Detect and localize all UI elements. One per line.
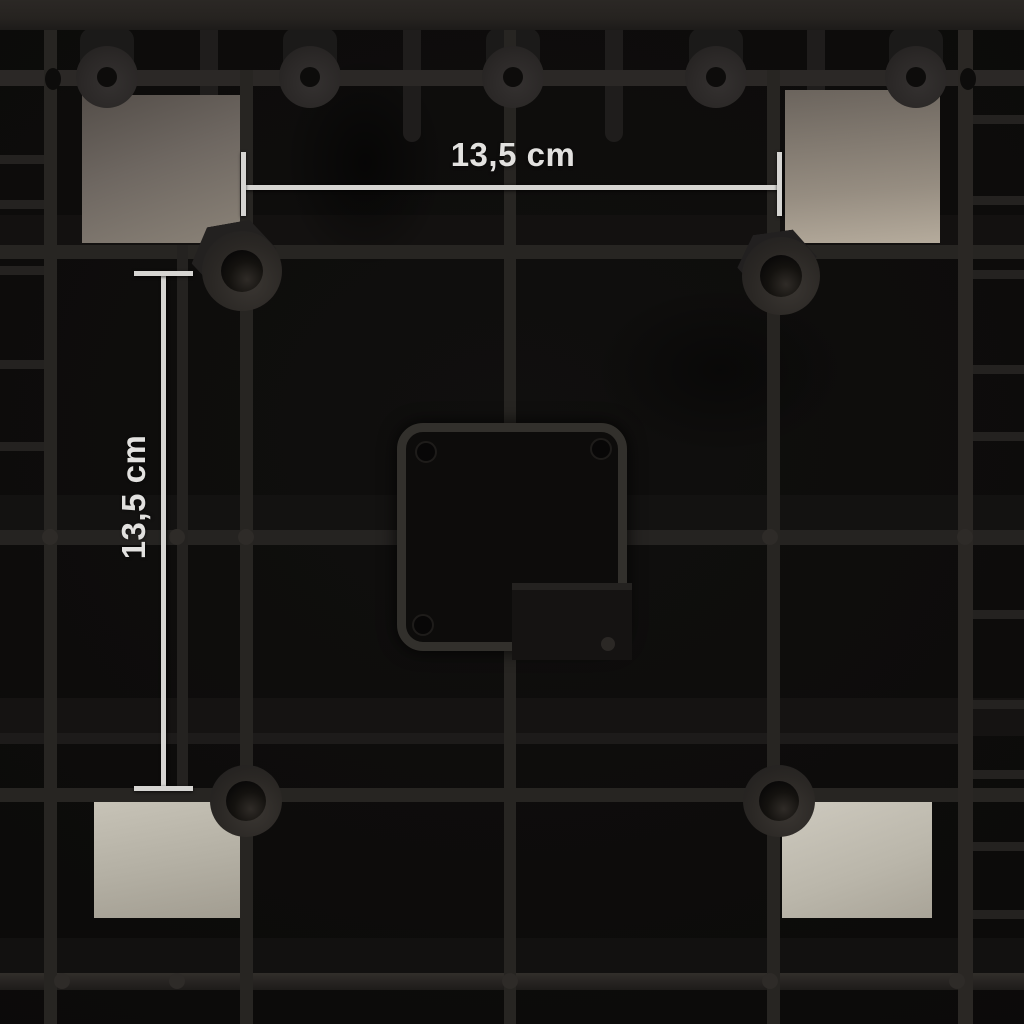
rib-bump [762,529,778,545]
product-photo: 13,5 cm 13,5 cm [0,0,1024,1024]
grid-rib-vertical [44,30,57,1024]
grid-rib-horizontal [973,196,1024,205]
soft-shadow [590,285,850,455]
rib-bump [762,973,778,989]
dimension-label-vertical: 13,5 cm [114,397,154,597]
mold-step [512,583,632,590]
rib-bump [502,973,518,989]
rib-bump [601,637,615,651]
screw-boss-hole [706,67,726,87]
grid-rib-horizontal [973,770,1024,779]
grid-rib-horizontal [973,115,1024,124]
dimension-line-horizontal [243,185,780,190]
mold-step [512,590,632,660]
foam-pad-top-right [785,90,940,243]
dimension-tick [134,786,193,791]
grid-rib-vertical [958,30,973,1024]
grid-rib-horizontal [0,733,965,744]
rib-bump [169,973,185,989]
support-cup-hole [226,781,266,821]
socket-corner-hole [412,614,434,636]
dimension-line-vertical [161,273,166,789]
screw-boss-hole [503,67,523,87]
dimension-tick [241,152,246,216]
dimension-label-horizontal: 13,5 cm [413,135,613,175]
rib-bump [957,529,973,545]
rib-bump [238,529,254,545]
screw-boss-hole [97,67,117,87]
vent-hole [960,68,976,90]
rib-bump [169,529,185,545]
grid-rib-horizontal [973,910,1024,919]
grid-rib-horizontal [0,442,44,451]
grid-rib-vertical [504,650,516,1024]
dimension-tick [777,152,782,216]
screw-boss-hole [300,67,320,87]
grid-rib-vertical [177,245,188,788]
grid-rib-horizontal [0,266,44,275]
grid-rib-horizontal [973,700,1024,709]
grid-rib-horizontal [973,270,1024,279]
support-cup-hole [759,781,799,821]
rib-bump [54,973,70,989]
support-cup-hole [760,255,802,297]
grid-rib-horizontal [973,842,1024,851]
screw-boss-hole [906,67,926,87]
support-cup-hole [221,250,263,292]
socket-corner-hole [415,441,437,463]
grid-rib-horizontal [973,365,1024,374]
grid-rib-horizontal [0,155,44,164]
vent-hole [45,68,61,90]
grid-rib-horizontal [973,432,1024,441]
socket-corner-hole [590,438,612,460]
grid-rib-horizontal [0,360,44,369]
foam-pad-top-left [82,95,243,243]
grid-rib-horizontal [973,610,1024,619]
grid-rib-horizontal [0,200,44,209]
dimension-tick [134,271,193,276]
rib-bump [42,529,58,545]
grid-bar-top [0,0,1024,30]
rib-bump [949,973,965,989]
